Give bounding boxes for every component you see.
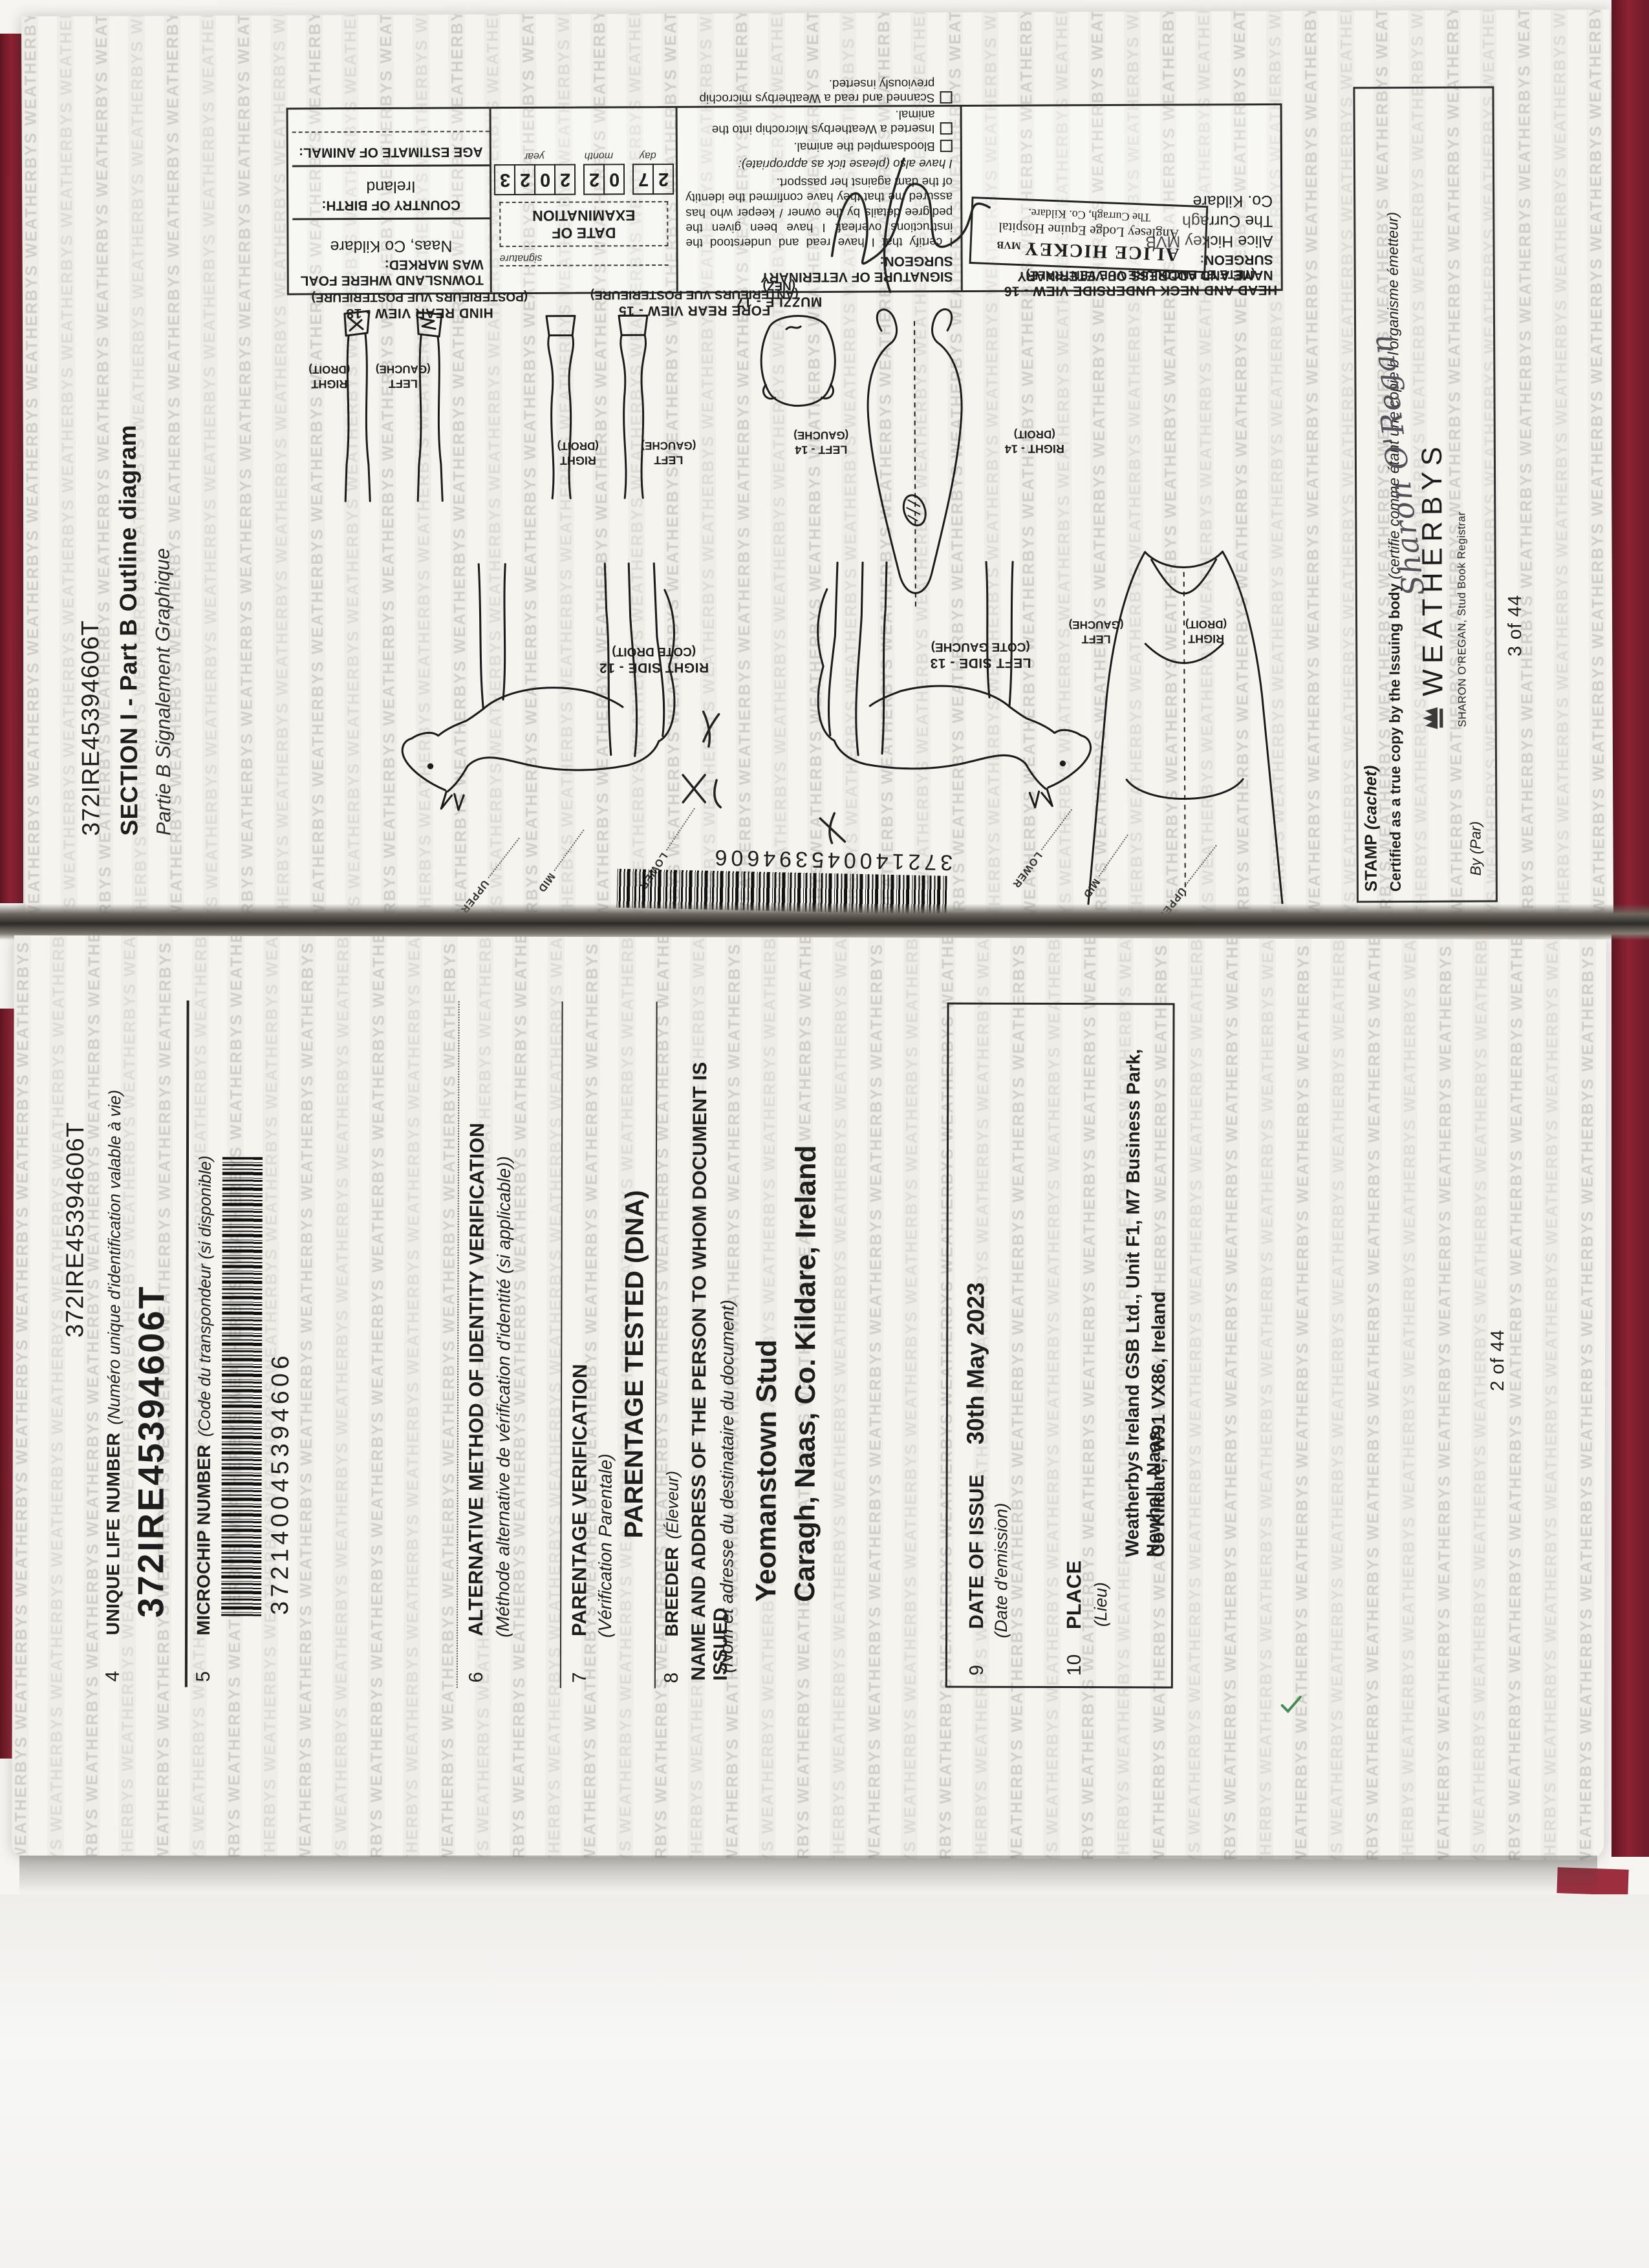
townsland-label: TOWNSLAND WHERE FOAL WAS MARKED: xyxy=(299,256,484,288)
page2-header-life-number: 372IRE45394606T xyxy=(61,1122,90,1338)
label-head14-right: RIGHT - 14(DROIT) xyxy=(989,427,1080,456)
page-title: SECTION I - Part B Outline diagram xyxy=(114,345,143,836)
tick-2: Inserted a Weatherbys Microchip into the… xyxy=(685,107,935,136)
watermark-text: WEATHERBYS WEATHERBYS WEATHERBYS WEATHER… xyxy=(1254,936,1278,1860)
stamp-column: STAMP (cachet) Certified as a true copy … xyxy=(1355,88,1495,901)
scanner-background xyxy=(0,1894,1649,2268)
section-divider xyxy=(185,1000,189,1687)
tick-3: Scanned and read a Weatherbys microchip … xyxy=(685,76,934,105)
s4-title: UNIQUE LIFE NUMBER xyxy=(103,1433,124,1635)
checkbox-scanned xyxy=(940,91,952,103)
section-number: 10 xyxy=(1064,1629,1086,1686)
watermark-text: WEATHERBYS WEATHERBYS WEATHERBYS WEATHER… xyxy=(1574,936,1598,1860)
fore-rear-view-drawing xyxy=(530,313,666,501)
page2-content: 372IRE45394606T 4 UNIQUE LIFE NUMBER (Nu… xyxy=(61,994,1201,1695)
vet-signature-scribble xyxy=(807,133,1002,301)
s7-subtitle: (Vérification Parentale) xyxy=(595,1453,616,1638)
watermark-text: WEATHERBYS WEATHERBYS WEATHERBYS WEATHER… xyxy=(1514,10,1542,927)
day-digit: 2 xyxy=(652,164,674,195)
watermark-text: WEATHERBYS WEATHERBYS WEATHERBYS WEATHER… xyxy=(1538,936,1562,1860)
townsland-value: Naas, Co Kildare xyxy=(299,236,483,255)
watermark-text: WEATHERBYS WEATHERBYS WEATHERBYS WEATHER… xyxy=(21,10,48,927)
page-bottom-shadow xyxy=(19,1856,1597,1894)
registrar-name: SHARON O'REGAN, Stud Book Registrar xyxy=(1455,511,1469,727)
weatherbys-crown-icon xyxy=(1421,705,1446,731)
scanned-passport: { "watermark": {"word": "WEATHERBYS"}, "… xyxy=(0,0,1649,2268)
page-title-french: Partie B Signalement Graphique xyxy=(150,344,175,835)
year-digit: 2 xyxy=(554,164,576,195)
green-check-mark xyxy=(1278,1694,1304,1716)
birth-cell: TOWNSLAND WHERE FOAL WAS MARKED: Naas, C… xyxy=(292,109,492,293)
stamp-label-fr: (cachet) xyxy=(1361,765,1380,830)
life-number-title: 372IRE45394606T xyxy=(76,345,105,836)
cover-edge-left-top xyxy=(0,34,23,903)
watermark-text: WEATHERBYS WEATHERBYS WEATHERBYS WEATHER… xyxy=(199,10,226,927)
s4-subtitle: (Numéro unique d'identification valable … xyxy=(104,1090,125,1425)
watermark-text: WEATHERBYS WEATHERBYS WEATHERBYS WEATHER… xyxy=(1218,936,1242,1860)
page-2-details: WEATHERBYS WEATHERBYS WEATHERBYS WEATHER… xyxy=(12,936,1606,1860)
s5-subtitle: (Code du transpondeur (si disponible) xyxy=(195,1155,215,1437)
section-divider xyxy=(560,1001,563,1688)
certified-text: Certified as a true copy by the Issuing … xyxy=(1386,583,1404,892)
section-divider xyxy=(457,1001,460,1688)
day-digit: 7 xyxy=(632,164,654,195)
page-number-3: 3 of 44 xyxy=(1505,558,1535,656)
muzzle-drawing xyxy=(746,307,850,431)
watermark-text: WEATHERBYS WEATHERBYS WEATHERBYS WEATHER… xyxy=(1586,10,1613,927)
s8-title: BREEDER xyxy=(662,1546,682,1636)
signature-caption: signature xyxy=(500,251,669,264)
watermark-text: WEATHERBYS WEATHERBYS WEATHERBYS WEATHER… xyxy=(1289,936,1313,1860)
s10-title: PLACE xyxy=(1062,1560,1086,1629)
s8-value2: Caragh, Naas, Co. Kildare, Ireland xyxy=(789,1145,823,1602)
section-divider xyxy=(654,1001,658,1688)
country-value: Ireland xyxy=(299,177,483,196)
s7-value: PARENTAGE TESTED (DNA) xyxy=(620,1190,649,1539)
section-number: 7 xyxy=(569,1636,591,1693)
month-label: month xyxy=(579,149,619,161)
watermark-text: WEATHERBYS WEATHERBYS WEATHERBYS WEATHER… xyxy=(1325,936,1349,1860)
booklet-fold-shadow xyxy=(0,904,1649,940)
watermark-text: WEATHERBYS WEATHERBYS WEATHERBYS WEATHER… xyxy=(1361,936,1385,1860)
section-number: 9 xyxy=(966,1629,988,1686)
barcode-page2 xyxy=(221,1157,263,1616)
date-boxes: 2 7 0 2 2 0 2 3 xyxy=(499,164,668,195)
signature-line xyxy=(500,264,669,286)
hind-rear-view-drawing xyxy=(327,309,463,504)
watermark-text: WEATHERBYS WEATHERBYS WEATHERBYS WEATHER… xyxy=(1550,10,1578,927)
watermark-text: WEATHERBYS WEATHERBYS WEATHERBYS WEATHER… xyxy=(1467,936,1491,1860)
day-label: day xyxy=(628,149,668,161)
page-number-2: 2 of 44 xyxy=(1487,1280,1517,1391)
section-number: 6 xyxy=(466,1636,488,1693)
section-title-block: 372IRE45394606T SECTION I - Part B Outli… xyxy=(76,344,200,836)
s9-value: 30th May 2023 xyxy=(962,1282,990,1444)
month-digit: 2 xyxy=(583,164,605,195)
s9-title: DATE OF ISSUE xyxy=(965,1474,989,1629)
weatherbys-brand: WEATHERBYS xyxy=(1416,441,1450,696)
by-par-label: By (Par) xyxy=(1467,821,1484,875)
s10-subtitle: (Lieu) xyxy=(1091,1582,1111,1627)
age-estimate-label: AGE ESTIMATE OF ANIMAL: xyxy=(299,144,483,160)
section-number: 5 xyxy=(193,1636,215,1693)
caption-muzzle: MUZZLE - 17 (NEZ) xyxy=(705,277,854,311)
date-exam-label: DATE OF EXAMINATION xyxy=(499,201,668,247)
year-digit: 0 xyxy=(534,164,555,195)
country-label: COUNTRY OF BIRTH: xyxy=(299,197,483,213)
s6-title: ALTERNATIVE METHOD OF IDENTITY VERIFICAT… xyxy=(464,1122,489,1636)
s7-title: PARENTAGE VERIFICATION xyxy=(568,1364,592,1636)
barcode-page3: 372140045394606 xyxy=(609,832,953,915)
stamp-label: STAMP xyxy=(1361,835,1380,892)
year-digit: 3 xyxy=(494,164,515,195)
section-number: 4 xyxy=(102,1635,124,1692)
s9-subtitle: (Date d'emission) xyxy=(991,1503,1012,1638)
issue-box: 9 DATE OF ISSUE 30th May 2023 (Date d'em… xyxy=(945,1003,1175,1689)
year-digit: 2 xyxy=(514,164,535,195)
s8-subtitle: (Éleveur) xyxy=(662,1471,682,1539)
vet-cell: NAME AND ADDRESS OF VETERINARY SURGEON: … xyxy=(962,105,1281,290)
s8-subtitle2: (Nom et adresse du destinataire du docum… xyxy=(717,1300,738,1673)
vet-stamp: ALICE HICKEY MVB Anglesey Lodge Equine H… xyxy=(969,197,1209,273)
date-cell: signature DATE OF EXAMINATION 2 7 0 2 2 … xyxy=(491,108,678,292)
s5-value: 372140045394606 xyxy=(266,1352,295,1615)
s8-value1: Yeomanstown Stud xyxy=(750,1340,783,1602)
watermark-text: WEATHERBYS WEATHERBYS WEATHERBYS WEATHER… xyxy=(1432,936,1456,1860)
watermark-text: WEATHERBYS WEATHERBYS WEATHERBYS WEATHER… xyxy=(1396,936,1420,1860)
s5-title: MICROCHIP NUMBER xyxy=(193,1444,215,1635)
s4-value: 372IRE45394606T xyxy=(129,1285,172,1618)
page-3-outline-diagram: WEATHERBYS WEATHERBYS WEATHERBYS WEATHER… xyxy=(21,10,1613,927)
s6-subtitle: (Méthode alternative de vérification d'i… xyxy=(493,1156,515,1638)
s10-value2: Co Kildare, W91 VX86, Ireland xyxy=(1148,1291,1170,1557)
watermark-text: WEATHERBYS WEATHERBYS WEATHERBYS WEATHER… xyxy=(234,10,262,927)
watermark-text: WEATHERBYS WEATHERBYS WEATHERBYS WEATHER… xyxy=(12,936,33,1860)
caption-head-neck-underside: HEAD AND NECK UNDERSIDE VIEW - 16 (TETE … xyxy=(989,265,1293,300)
watermark-text: WEATHERBYS WEATHERBYS WEATHERBYS WEATHER… xyxy=(1503,936,1527,1860)
section-number: 8 xyxy=(661,1636,683,1693)
year-label: year xyxy=(499,150,570,162)
month-digit: 0 xyxy=(603,164,625,195)
stamp-name: ALICE HICKEY xyxy=(1023,238,1180,264)
